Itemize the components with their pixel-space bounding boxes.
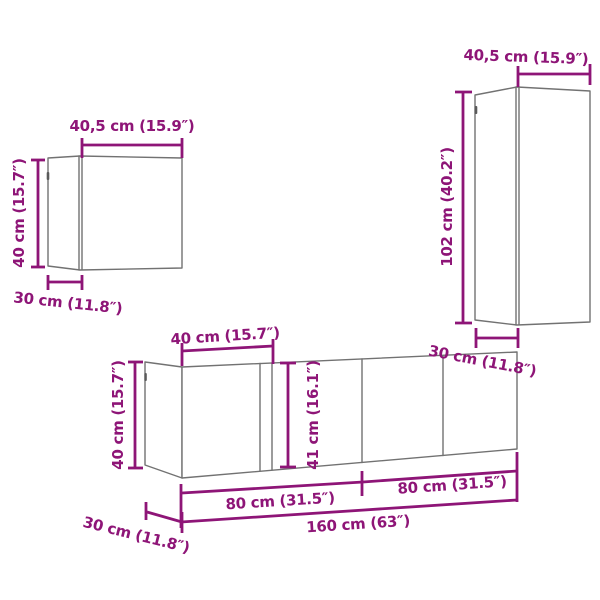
dimension-diagram: 40,5 cm (15.9″) 40 cm (15.7″) 30 cm (11.… bbox=[0, 0, 600, 600]
small-wall-cabinet bbox=[47, 156, 182, 270]
row-front-height-label: 41 cm (16.1″) bbox=[304, 360, 322, 469]
row-hinge bbox=[144, 373, 146, 381]
row-side-face bbox=[145, 362, 182, 478]
tall-cabinet-height-label: 102 cm (40.2″) bbox=[438, 147, 456, 267]
small-cabinet-height-label: 40 cm (15.7″) bbox=[10, 158, 28, 267]
small-cabinet-width-label: 40,5 cm (15.9″) bbox=[70, 117, 195, 135]
tall-wall-cabinet bbox=[475, 87, 590, 325]
row-height-label: 40 cm (15.7″) bbox=[109, 360, 127, 469]
small-cabinet-body bbox=[48, 156, 182, 270]
diagram-canvas: 40,5 cm (15.9″) 40 cm (15.7″) 30 cm (11.… bbox=[0, 0, 600, 600]
tall-cabinet-hinge bbox=[475, 106, 478, 114]
small-cabinet-hinge bbox=[47, 172, 50, 180]
tall-cabinet-body bbox=[475, 87, 590, 325]
